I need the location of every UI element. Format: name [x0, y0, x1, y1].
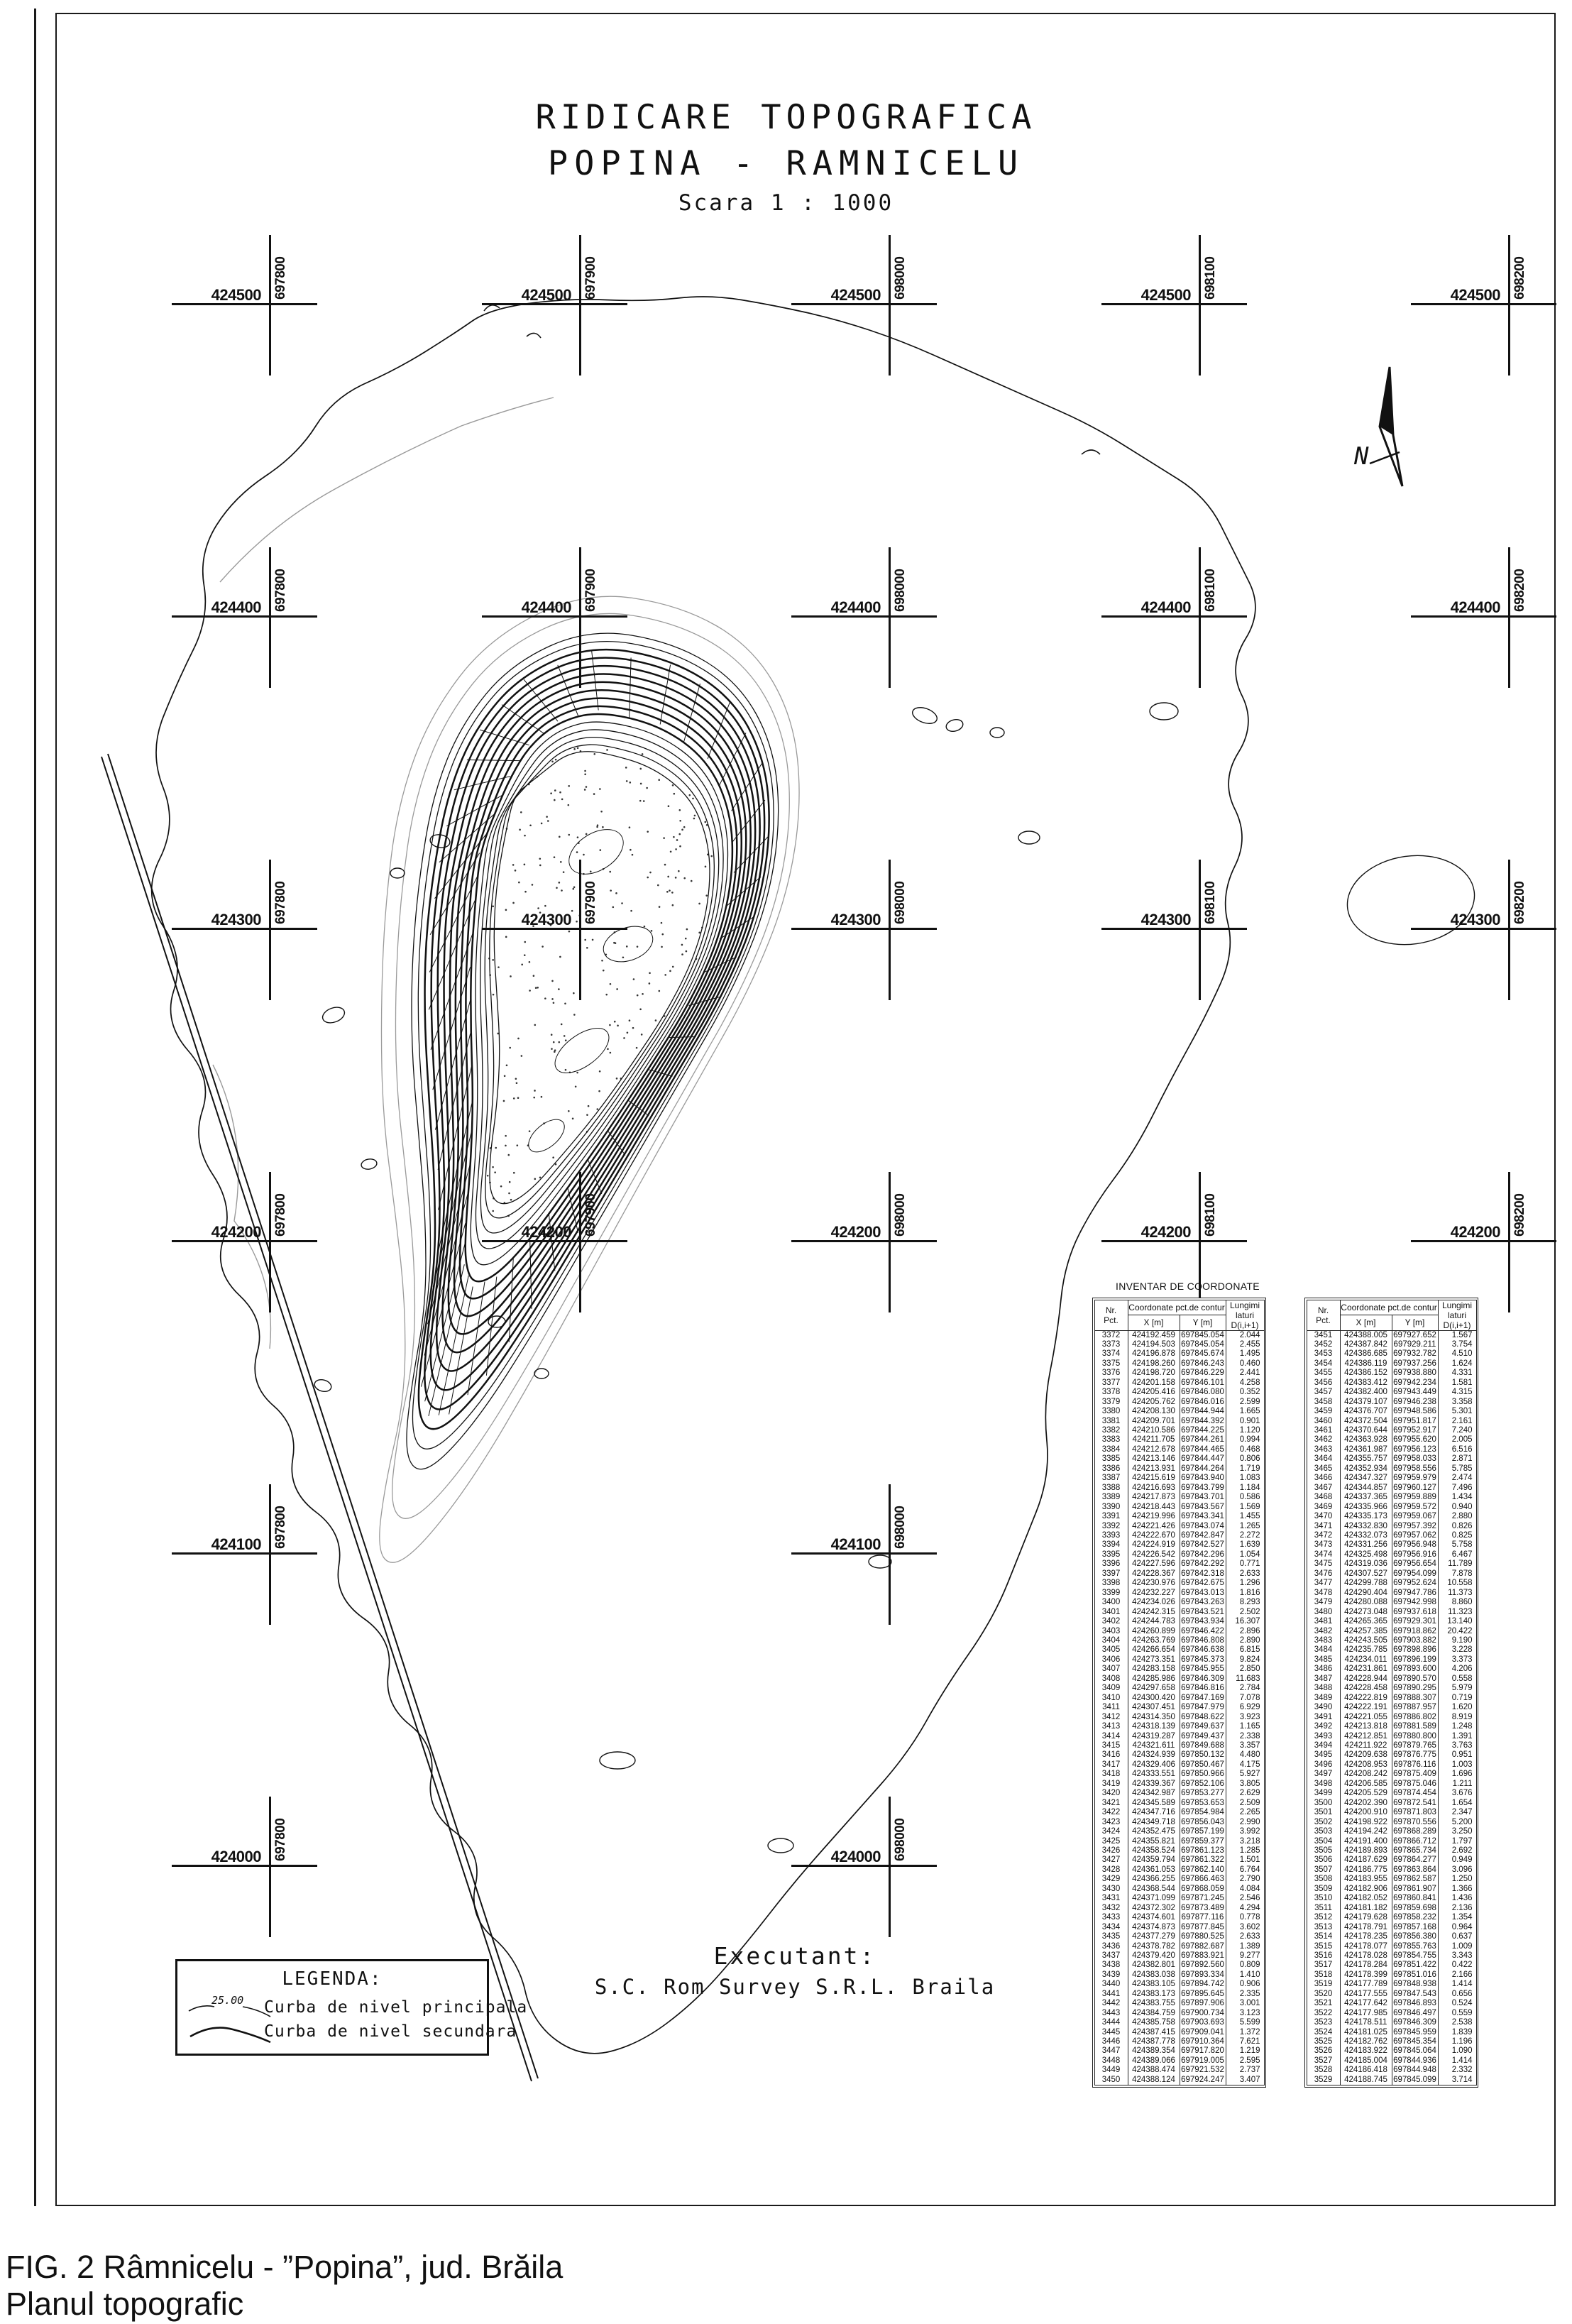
- cell-nr: 3401: [1094, 1608, 1128, 1617]
- cell-y: 697951.817: [1392, 1417, 1438, 1426]
- cell-nr: 3393: [1094, 1531, 1128, 1540]
- cell-nr: 3434: [1094, 1923, 1128, 1932]
- stipple-dot: [651, 930, 653, 932]
- cell-y: 697848.622: [1180, 1713, 1226, 1722]
- cell-y: 697844.944: [1180, 1407, 1226, 1416]
- table-row: 3395424226.542697842.2961.054: [1094, 1550, 1264, 1560]
- table-row: 3428424361.053697862.1406.764: [1094, 1865, 1264, 1875]
- stipple-dot: [554, 1049, 556, 1051]
- stipple-dot: [675, 877, 677, 879]
- cell-nr: 3372: [1094, 1330, 1128, 1340]
- cell-lungime: 2.546: [1226, 1894, 1264, 1903]
- terrain-blob: [990, 728, 1004, 738]
- cell-x: 424209.701: [1128, 1417, 1180, 1426]
- cell-nr: 3478: [1307, 1589, 1340, 1598]
- cell-nr: 3494: [1307, 1741, 1340, 1750]
- cell-x: 424385.758: [1128, 2018, 1180, 2027]
- cell-y: 697952.624: [1392, 1579, 1438, 1588]
- table-row: 3481424265.365697929.30113.140: [1307, 1617, 1476, 1626]
- cell-y: 697876.116: [1392, 1760, 1438, 1770]
- cell-nr: 3500: [1307, 1799, 1340, 1808]
- stipple-dot: [533, 975, 535, 977]
- cell-x: 424355.821: [1128, 1837, 1180, 1846]
- cell-lungime: 0.771: [1226, 1560, 1264, 1569]
- cell-y: 697881.589: [1392, 1722, 1438, 1731]
- cell-y: 697849.637: [1180, 1722, 1226, 1731]
- stipple-dot: [705, 821, 707, 823]
- cell-lungime: 2.338: [1226, 1732, 1264, 1741]
- col-header-x: X [m]: [1128, 1315, 1180, 1331]
- cell-y: 697850.966: [1180, 1770, 1226, 1779]
- cell-x: 424266.654: [1128, 1645, 1180, 1655]
- cell-x: 424194.503: [1128, 1340, 1180, 1349]
- cell-nr: 3423: [1094, 1818, 1128, 1827]
- cell-nr: 3433: [1094, 1913, 1128, 1922]
- table-row: 3453424386.685697932.7824.510: [1307, 1349, 1476, 1359]
- cell-x: 424222.670: [1128, 1531, 1180, 1540]
- cell-y: 697844.465: [1180, 1445, 1226, 1454]
- cell-nr: 3504: [1307, 1837, 1340, 1846]
- stipple-dot: [630, 849, 632, 851]
- cell-nr: 3412: [1094, 1713, 1128, 1722]
- cell-y: 697927.652: [1392, 1330, 1438, 1340]
- cell-x: 424344.857: [1340, 1484, 1392, 1493]
- stipple-dot: [493, 1197, 495, 1200]
- stipple-dot: [544, 997, 546, 999]
- table-row: 3414424319.287697849.4372.338: [1094, 1732, 1264, 1741]
- north-label: N: [1354, 442, 1368, 471]
- cell-y: 697890.295: [1392, 1684, 1438, 1693]
- stipple-dot: [541, 823, 543, 825]
- table-row: 3474424325.498697956.9166.467: [1307, 1550, 1476, 1560]
- cell-lungime: 3.676: [1438, 1789, 1476, 1798]
- stipple-dot: [510, 975, 512, 977]
- table-row: 3394424224.919697842.5271.639: [1094, 1540, 1264, 1550]
- cell-y: 697846.101: [1180, 1378, 1226, 1388]
- cell-y: 697858.232: [1392, 1913, 1438, 1922]
- table-row: 3458424379.107697946.2383.358: [1307, 1398, 1476, 1407]
- cell-x: 424386.119: [1340, 1359, 1392, 1369]
- grid-northing-label: 424500: [790, 286, 881, 305]
- secondary-contour: [380, 596, 799, 1562]
- cell-y: 697870.556: [1392, 1818, 1438, 1827]
- cell-lungime: 7.078: [1226, 1694, 1264, 1703]
- cell-nr: 3472: [1307, 1531, 1340, 1540]
- table-row: 3478424290.404697947.78611.373: [1307, 1589, 1476, 1598]
- stipple-dot: [681, 944, 683, 946]
- table-row: 3488424228.458697890.2955.979: [1307, 1684, 1476, 1693]
- wetland-boundary: [152, 297, 1255, 2054]
- cell-lungime: 1.248: [1438, 1722, 1476, 1731]
- stipple-dot: [637, 946, 639, 948]
- stipple-dot: [521, 964, 523, 966]
- stipple-dot: [599, 788, 601, 790]
- stipple-dot: [559, 956, 561, 958]
- cell-nr: 3502: [1307, 1818, 1340, 1827]
- stipple-dot: [586, 833, 588, 835]
- stipple-dot: [661, 933, 664, 936]
- stipple-dot: [534, 1024, 536, 1026]
- grid-easting-label: 697800: [273, 1796, 289, 1861]
- stipple-dot: [503, 1100, 505, 1102]
- cell-y: 697948.586: [1392, 1407, 1438, 1416]
- cell-x: 424221.055: [1340, 1713, 1392, 1722]
- cell-lungime: 0.778: [1226, 1913, 1264, 1922]
- stipple-dot: [633, 978, 635, 980]
- cell-nr: 3382: [1094, 1426, 1128, 1435]
- cell-y: 697919.005: [1180, 2056, 1226, 2066]
- stipple-dot: [509, 1047, 511, 1049]
- grid-northing-label: 424200: [480, 1223, 571, 1242]
- cell-lungime: 6.467: [1438, 1550, 1476, 1560]
- cell-lungime: 1.654: [1438, 1799, 1476, 1808]
- cell-lungime: 9.824: [1226, 1655, 1264, 1665]
- table-row: 3396424227.596697842.2920.771: [1094, 1560, 1264, 1569]
- grid-cross-vertical: [1508, 235, 1510, 376]
- cell-lungime: 1.696: [1438, 1770, 1476, 1779]
- cell-x: 424333.551: [1128, 1770, 1180, 1779]
- stipple-dot: [706, 824, 708, 826]
- cell-lungime: 2.599: [1226, 1398, 1264, 1407]
- stipple-dot: [679, 809, 681, 811]
- cell-lungime: 2.347: [1438, 1808, 1476, 1817]
- stipple-dot: [705, 866, 707, 868]
- grid-cross-vertical: [269, 235, 271, 376]
- cell-nr: 3419: [1094, 1780, 1128, 1789]
- cell-lungime: 1.581: [1438, 1378, 1476, 1388]
- cell-lungime: 6.815: [1226, 1645, 1264, 1655]
- cell-y: 697929.211: [1392, 1340, 1438, 1349]
- stipple-dot: [533, 1097, 535, 1099]
- stipple-dot: [529, 824, 532, 826]
- cell-nr: 3399: [1094, 1589, 1128, 1598]
- cell-y: 697863.864: [1392, 1865, 1438, 1875]
- cell-lungime: 3.096: [1438, 1865, 1476, 1875]
- cell-nr: 3454: [1307, 1359, 1340, 1369]
- grid-northing-label: 424400: [1100, 598, 1191, 617]
- stipple-dot: [551, 1048, 553, 1050]
- cell-y: 697842.292: [1180, 1560, 1226, 1569]
- grid-easting-label: 698200: [1512, 547, 1528, 612]
- col-header-nr: Nr.Pct.: [1307, 1300, 1340, 1330]
- cell-y: 697947.786: [1392, 1589, 1438, 1598]
- cell-lungime: 1.569: [1226, 1503, 1264, 1512]
- cell-x: 424205.416: [1128, 1388, 1180, 1397]
- map-title-line1: RIDICARE TOPOGRAFICA: [0, 98, 1572, 137]
- stipple-dot: [576, 851, 578, 853]
- cell-nr: 3479: [1307, 1598, 1340, 1607]
- table-row: 3461424370.644697952.9177.240: [1307, 1426, 1476, 1435]
- stipple-dot: [576, 1072, 578, 1074]
- stipple-dot: [561, 889, 563, 892]
- cell-y: 697958.556: [1392, 1464, 1438, 1474]
- stipple-dot: [513, 1172, 515, 1174]
- stipple-dot: [565, 1039, 567, 1041]
- table-row: 3379424205.762697846.0162.599: [1094, 1398, 1264, 1407]
- cell-x: 424383.412: [1340, 1378, 1392, 1388]
- table-row: 3499424205.529697874.4543.676: [1307, 1789, 1476, 1798]
- stipple-dot: [529, 990, 531, 992]
- stipple-dot: [671, 892, 674, 894]
- stipple-dot: [626, 780, 628, 782]
- table-row: 3391424219.996697843.3411.455: [1094, 1512, 1264, 1521]
- stipple-dot: [494, 1171, 496, 1173]
- table-row: 3451424388.005697927.6521.567: [1307, 1330, 1476, 1340]
- cell-x: 424181.025: [1340, 2028, 1392, 2037]
- stipple-dot: [661, 922, 663, 924]
- cell-nr: 3422: [1094, 1808, 1128, 1817]
- grid-northing-label: 424300: [480, 911, 571, 929]
- cell-lungime: 2.737: [1226, 2066, 1264, 2075]
- cell-y: 697956.654: [1392, 1560, 1438, 1569]
- cell-nr: 3475: [1307, 1560, 1340, 1569]
- stipple-dot: [506, 1064, 508, 1066]
- table-row: 3397424228.367697842.3182.633: [1094, 1569, 1264, 1579]
- cell-x: 424339.367: [1128, 1780, 1180, 1789]
- table-row: 3522424177.985697846.4970.559: [1307, 2009, 1476, 2018]
- cell-y: 697844.392: [1180, 1417, 1226, 1426]
- cell-nr: 3383: [1094, 1435, 1128, 1445]
- cell-y: 697845.099: [1392, 2076, 1438, 2085]
- col-header-y: Y [m]: [1392, 1315, 1438, 1331]
- stipple-dot: [542, 946, 544, 948]
- cell-y: 697843.521: [1180, 1608, 1226, 1617]
- table-row: 3504424191.400697866.7121.797: [1307, 1837, 1476, 1846]
- grid-easting-label: 698100: [1203, 859, 1219, 924]
- cell-nr: 3485: [1307, 1655, 1340, 1665]
- cell-nr: 3471: [1307, 1522, 1340, 1531]
- stipple-dot: [593, 793, 595, 795]
- cell-y: 697862.140: [1180, 1865, 1226, 1875]
- stipple-dot: [551, 980, 554, 982]
- cell-x: 424243.505: [1340, 1636, 1392, 1645]
- cell-y: 697874.454: [1392, 1789, 1438, 1798]
- cell-x: 424242.315: [1128, 1608, 1180, 1617]
- cell-nr: 3376: [1094, 1369, 1128, 1378]
- cell-nr: 3397: [1094, 1569, 1128, 1579]
- terrain-squiggle: [1082, 450, 1100, 454]
- cell-x: 424198.922: [1340, 1818, 1392, 1827]
- map-title-line2: POPINA - RAMNICELU: [0, 144, 1572, 183]
- col-header-coord-group: Coordonate pct.de contur: [1340, 1300, 1438, 1315]
- cell-nr: 3400: [1094, 1598, 1128, 1607]
- grid-cross-vertical: [1199, 860, 1201, 1000]
- cell-lungime: 1.391: [1438, 1732, 1476, 1741]
- cell-nr: 3480: [1307, 1608, 1340, 1617]
- table-row: 3380424208.130697844.9441.665: [1094, 1407, 1264, 1416]
- cell-y: 697864.277: [1392, 1856, 1438, 1865]
- cell-nr: 3477: [1307, 1579, 1340, 1588]
- stipple-dot: [575, 1085, 577, 1087]
- table-row: 3469424335.966697959.5720.940: [1307, 1503, 1476, 1512]
- cell-x: 424181.182: [1340, 1904, 1392, 1913]
- cell-y: 697868.289: [1392, 1827, 1438, 1836]
- cell-y: 697957.392: [1392, 1522, 1438, 1531]
- stipple-dot: [497, 1033, 499, 1035]
- cell-lungime: 0.949: [1438, 1856, 1476, 1865]
- grid-cross-vertical: [269, 860, 271, 1000]
- cell-lungime: 1.354: [1438, 1913, 1476, 1922]
- cell-y: 697857.199: [1180, 1827, 1226, 1836]
- contour-ring: [471, 722, 727, 1265]
- cell-y: 697846.309: [1180, 1675, 1226, 1684]
- table-row: 3464424355.757697958.0332.871: [1307, 1454, 1476, 1464]
- terrain-blob: [911, 704, 940, 726]
- grid-easting-label: 697800: [273, 547, 289, 612]
- stipple-dot: [600, 811, 603, 813]
- cell-nr: 3514: [1307, 1932, 1340, 1941]
- cell-lungime: 1.639: [1226, 1540, 1264, 1550]
- cell-x: 424374.601: [1128, 1913, 1180, 1922]
- table-row: 3528424186.418697844.9482.332: [1307, 2066, 1476, 2075]
- cell-x: 424213.818: [1340, 1722, 1392, 1731]
- stipple-dot: [573, 992, 575, 994]
- cell-lungime: 8.860: [1438, 1598, 1476, 1607]
- cell-lungime: 4.480: [1226, 1750, 1264, 1760]
- stipple-dot: [688, 794, 691, 796]
- cell-x: 424222.819: [1340, 1694, 1392, 1703]
- cell-y: 697924.247: [1180, 2076, 1226, 2085]
- cell-x: 424363.928: [1340, 1435, 1392, 1445]
- grid-easting-label: 697800: [273, 859, 289, 924]
- cell-nr: 3476: [1307, 1569, 1340, 1579]
- cell-nr: 3481: [1307, 1617, 1340, 1626]
- cell-nr: 3443: [1094, 2009, 1128, 2018]
- cell-lungime: 4.294: [1226, 1904, 1264, 1913]
- stipple-dot: [617, 1025, 619, 1027]
- table-row: 3419424339.367697852.1063.805: [1094, 1780, 1264, 1789]
- cell-y: 697846.229: [1180, 1369, 1226, 1378]
- stipple-dot: [517, 1144, 519, 1146]
- cell-nr: 3421: [1094, 1799, 1128, 1808]
- legend-item-minor-contour: Curba de nivel secundara: [264, 2022, 517, 2041]
- stipple-dot: [669, 970, 671, 972]
- cell-x: 424388.474: [1128, 2066, 1180, 2075]
- stipple-dot: [606, 749, 608, 751]
- stipple-dot: [580, 750, 582, 752]
- cell-nr: 3525: [1307, 2037, 1340, 2046]
- cell-x: 424307.527: [1340, 1569, 1392, 1579]
- cell-lungime: 3.754: [1438, 1340, 1476, 1349]
- table-row: 3485424234.011697896.1993.373: [1307, 1655, 1476, 1665]
- legend-title: LEGENDA:: [177, 1968, 487, 1990]
- stipple-dot: [539, 857, 541, 860]
- table-row: 3507424186.775697863.8643.096: [1307, 1865, 1476, 1875]
- table-row: 3445424387.415697909.0411.372: [1094, 2028, 1264, 2037]
- cell-x: 424178.791: [1340, 1923, 1392, 1932]
- cell-nr: 3457: [1307, 1388, 1340, 1397]
- stipple-dot: [561, 1024, 563, 1026]
- stipple-dot: [500, 1185, 502, 1188]
- cell-nr: 3418: [1094, 1770, 1128, 1779]
- cell-nr: 3429: [1094, 1875, 1128, 1884]
- cell-nr: 3435: [1094, 1932, 1128, 1941]
- cell-nr: 3483: [1307, 1636, 1340, 1645]
- table-row: 3446424387.778697910.3647.621: [1094, 2037, 1264, 2046]
- stipple-dot: [558, 988, 560, 990]
- cell-lungime: 1.620: [1438, 1703, 1476, 1712]
- table-row: 3496424208.953697876.1161.003: [1307, 1760, 1476, 1770]
- cell-x: 424232.227: [1128, 1589, 1180, 1598]
- cell-nr: 3410: [1094, 1694, 1128, 1703]
- cell-x: 424299.788: [1340, 1579, 1392, 1588]
- cell-nr: 3391: [1094, 1512, 1128, 1521]
- cell-x: 424191.400: [1340, 1837, 1392, 1846]
- table-row: 3383424211.705697844.2610.994: [1094, 1435, 1264, 1445]
- cell-nr: 3466: [1307, 1474, 1340, 1483]
- cell-nr: 3431: [1094, 1894, 1128, 1903]
- table-row: 3448424389.066697919.0052.595: [1094, 2056, 1264, 2066]
- terrain-blob: [1341, 848, 1480, 953]
- cell-y: 697871.245: [1180, 1894, 1226, 1903]
- col-header-lungimi: LungimilaturiD(i,i+1): [1226, 1300, 1264, 1330]
- stipple-dot: [521, 1055, 523, 1057]
- cell-x: 424217.873: [1128, 1493, 1180, 1502]
- cell-y: 697903.882: [1392, 1636, 1438, 1645]
- stipple-dot: [577, 747, 579, 750]
- table-row: 3443424384.759697900.7343.123: [1094, 2009, 1264, 2018]
- cell-y: 697843.940: [1180, 1474, 1226, 1483]
- cell-x: 424389.354: [1128, 2046, 1180, 2056]
- table-row: 3513424178.791697857.1680.964: [1307, 1923, 1476, 1932]
- cell-nr: 3396: [1094, 1560, 1128, 1569]
- table-row: 3509424182.906697861.9071.366: [1307, 1885, 1476, 1894]
- cell-y: 697846.080: [1180, 1388, 1226, 1397]
- table-row: 3523424178.511697846.3092.538: [1307, 2018, 1476, 2027]
- cell-lungime: 3.123: [1226, 2009, 1264, 2018]
- cell-x: 424219.996: [1128, 1512, 1180, 1521]
- cell-x: 424379.107: [1340, 1398, 1392, 1407]
- cell-x: 424388.124: [1128, 2076, 1180, 2085]
- stipple-dot: [693, 818, 696, 820]
- cell-nr: 3403: [1094, 1627, 1128, 1636]
- cell-y: 697958.033: [1392, 1454, 1438, 1464]
- table-row: 3490424222.191697887.9571.620: [1307, 1703, 1476, 1712]
- cell-nr: 3386: [1094, 1464, 1128, 1474]
- cell-nr: 3465: [1307, 1464, 1340, 1474]
- grid-cross-vertical: [579, 860, 581, 1000]
- cell-nr: 3508: [1307, 1875, 1340, 1884]
- table-row: 3388424216.693697843.7991.184: [1094, 1484, 1264, 1493]
- cell-lungime: 0.826: [1438, 1522, 1476, 1531]
- grid-easting-label: 697800: [273, 1484, 289, 1549]
- cell-nr: 3411: [1094, 1703, 1128, 1712]
- stipple-dot: [623, 1037, 625, 1039]
- cell-nr: 3526: [1307, 2046, 1340, 2056]
- cell-x: 424202.390: [1340, 1799, 1392, 1808]
- cell-y: 697862.587: [1392, 1875, 1438, 1884]
- stipple-dot: [509, 1181, 511, 1183]
- cell-y: 697846.497: [1392, 2009, 1438, 2018]
- table-row: 3454424386.119697937.2561.624: [1307, 1359, 1476, 1369]
- cell-nr: 3416: [1094, 1750, 1128, 1760]
- table-row: 3409424297.658697846.8162.784: [1094, 1684, 1264, 1693]
- cell-nr: 3512: [1307, 1913, 1340, 1922]
- cell-y: 697842.318: [1180, 1569, 1226, 1579]
- terrain-blob: [945, 718, 964, 733]
- cell-nr: 3407: [1094, 1665, 1128, 1674]
- cell-x: 424205.762: [1128, 1398, 1180, 1407]
- cell-nr: 3408: [1094, 1675, 1128, 1684]
- grid-cross-vertical: [889, 547, 891, 688]
- cell-y: 697959.067: [1392, 1512, 1438, 1521]
- cell-x: 424335.173: [1340, 1512, 1392, 1521]
- stipple-dot: [537, 776, 539, 778]
- north-arrow: N: [1334, 358, 1434, 508]
- cell-nr: 3501: [1307, 1808, 1340, 1817]
- grid-cross-vertical: [1199, 235, 1201, 376]
- stipple-dot: [636, 1047, 638, 1049]
